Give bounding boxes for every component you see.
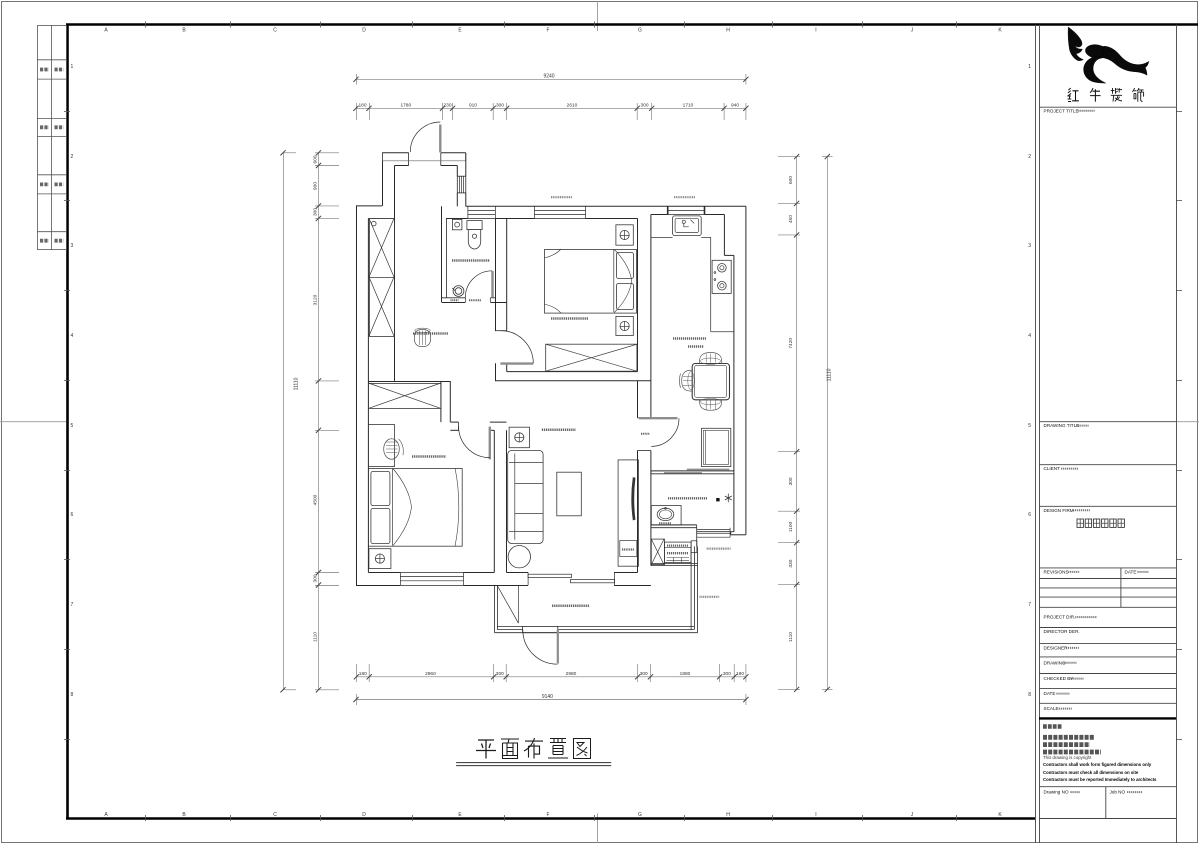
svg-text:7: 7	[1028, 602, 1031, 608]
svg-text:Contractors must check all dim: Contractors must check all dimensions on…	[1043, 770, 1139, 775]
svg-text:450: 450	[788, 215, 794, 223]
svg-text:D: D	[362, 812, 366, 818]
svg-text:DESIGN FIRM: DESIGN FIRM	[1044, 508, 1074, 513]
svg-text:600: 600	[312, 155, 318, 163]
svg-text:8: 8	[1028, 692, 1031, 698]
svg-text:3: 3	[1028, 243, 1031, 249]
svg-text:G: G	[638, 28, 642, 34]
svg-text:REVISIONS: REVISIONS	[1044, 570, 1069, 575]
svg-text:DRAWING TITLE: DRAWING TITLE	[1044, 423, 1080, 428]
svg-text:300: 300	[312, 574, 318, 582]
svg-text:2960: 2960	[425, 671, 436, 677]
svg-text:300: 300	[723, 671, 731, 677]
svg-text:D: D	[362, 28, 366, 34]
svg-text:230: 230	[443, 102, 451, 108]
svg-text:4: 4	[1028, 333, 1031, 339]
svg-text:1880: 1880	[680, 671, 691, 677]
svg-text:300: 300	[496, 671, 504, 677]
svg-text:F: F	[546, 812, 549, 818]
svg-text:6: 6	[1028, 512, 1031, 518]
svg-text:300: 300	[640, 671, 648, 677]
svg-text:11110: 11110	[827, 368, 833, 381]
svg-text:CHECKED BY: CHECKED BY	[1044, 676, 1074, 681]
svg-text:Contractors must be reported I: Contractors must be reported Immediately…	[1043, 777, 1157, 782]
svg-text:1: 1	[71, 64, 74, 70]
svg-text:2: 2	[1028, 154, 1031, 160]
svg-text:CLIENT: CLIENT	[1044, 466, 1061, 471]
svg-text:1110: 1110	[788, 632, 794, 642]
svg-text:DESIGNER: DESIGNER	[1044, 646, 1069, 651]
svg-text:3: 3	[71, 243, 74, 249]
svg-text:300: 300	[312, 208, 318, 216]
svg-text:F: F	[546, 28, 549, 34]
svg-text:900: 900	[312, 182, 318, 190]
svg-text:180: 180	[736, 671, 744, 677]
svg-text:H: H	[726, 28, 730, 34]
svg-text:1710: 1710	[683, 102, 694, 108]
svg-text:4500: 4500	[312, 494, 318, 505]
svg-text:5: 5	[71, 423, 74, 429]
svg-text:Contractors shall work form fi: Contractors shall work form figured dime…	[1043, 762, 1152, 767]
svg-text:1: 1	[1028, 64, 1031, 70]
svg-text:8: 8	[71, 692, 74, 698]
svg-text:DATE: DATE	[1044, 691, 1056, 696]
svg-text:2610: 2610	[567, 102, 578, 108]
svg-text:DATE: DATE	[1125, 570, 1137, 575]
svg-text:PROJECT TITLE: PROJECT TITLE	[1044, 108, 1079, 113]
svg-text:7: 7	[71, 602, 74, 608]
svg-text:7420: 7420	[788, 338, 794, 349]
svg-text:SCALE: SCALE	[1044, 706, 1059, 711]
svg-text:I: I	[815, 28, 816, 34]
svg-text:1100: 1100	[788, 521, 794, 532]
svg-text:PROJECT DIR.: PROJECT DIR.	[1044, 615, 1076, 620]
svg-text:I: I	[815, 812, 816, 818]
svg-text:9240: 9240	[543, 73, 554, 79]
svg-text:This drawing is copyright: This drawing is copyright	[1043, 755, 1092, 760]
svg-text:600: 600	[788, 176, 794, 184]
svg-text:H: H	[726, 812, 730, 818]
svg-text:11110: 11110	[294, 377, 300, 390]
svg-text:Drawing NO: Drawing NO	[1044, 790, 1069, 795]
svg-text:6: 6	[71, 512, 74, 518]
svg-text:C: C	[273, 28, 277, 34]
svg-text:2: 2	[71, 154, 74, 160]
svg-text:G: G	[638, 812, 642, 818]
svg-text:910: 910	[469, 102, 477, 108]
svg-text:1110: 1110	[312, 632, 318, 642]
svg-text:DRAWING: DRAWING	[1044, 660, 1066, 665]
svg-text:330: 330	[788, 559, 794, 567]
svg-text:180: 180	[359, 671, 367, 677]
svg-text:3120: 3120	[312, 294, 318, 305]
svg-text:300: 300	[640, 102, 648, 108]
svg-text:DIRECTOR DER.: DIRECTOR DER.	[1044, 629, 1080, 634]
svg-text:Job NO: Job NO	[1110, 790, 1126, 795]
svg-text:300: 300	[788, 477, 794, 485]
svg-text:4: 4	[71, 333, 74, 339]
svg-text:9140: 9140	[542, 694, 553, 700]
svg-text:2980: 2980	[566, 671, 577, 677]
svg-text:180: 180	[358, 102, 366, 108]
svg-text:C: C	[273, 812, 277, 818]
svg-text:1780: 1780	[400, 102, 411, 108]
svg-text:5: 5	[1028, 423, 1031, 429]
svg-text:940: 940	[731, 102, 739, 108]
svg-text:300: 300	[496, 102, 504, 108]
